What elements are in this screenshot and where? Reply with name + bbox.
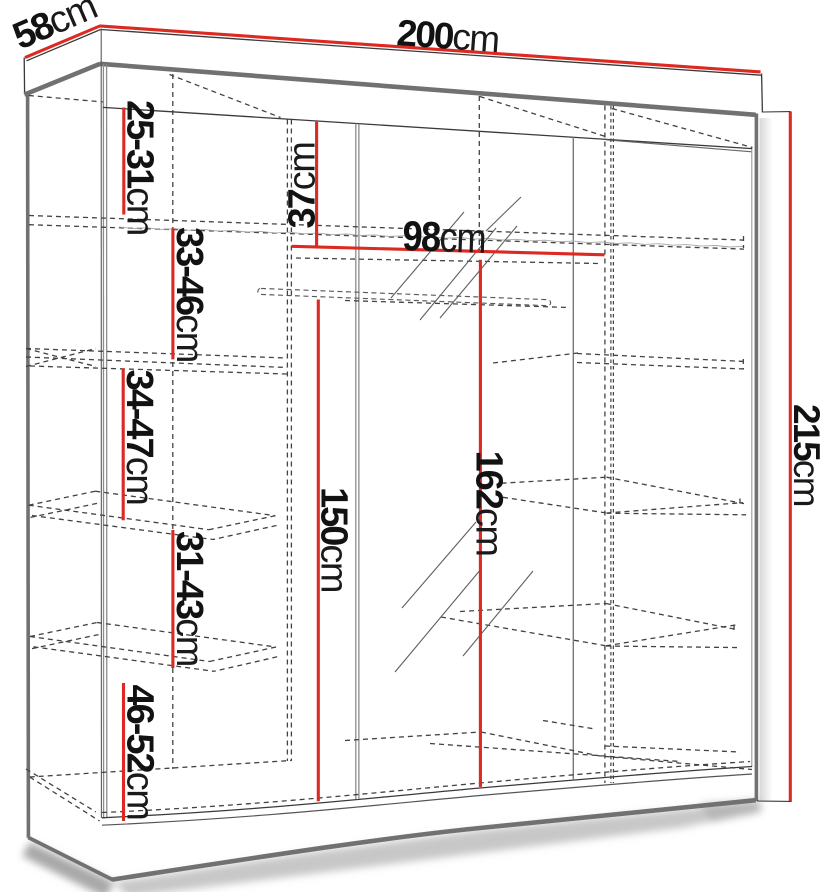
svg-text:215cm: 215cm [786,404,827,506]
svg-text:46-52cm: 46-52cm [118,685,160,820]
svg-text:25-31cm: 25-31cm [118,100,160,235]
svg-text:200cm: 200cm [395,12,500,60]
svg-text:150cm: 150cm [313,487,355,592]
svg-text:37cm: 37cm [282,143,324,229]
svg-text:34-47cm: 34-47cm [118,370,160,505]
svg-text:162cm: 162cm [468,451,510,556]
svg-text:33-46cm: 33-46cm [168,227,210,362]
svg-text:31-43cm: 31-43cm [168,531,210,666]
svg-text:98cm: 98cm [402,212,487,262]
